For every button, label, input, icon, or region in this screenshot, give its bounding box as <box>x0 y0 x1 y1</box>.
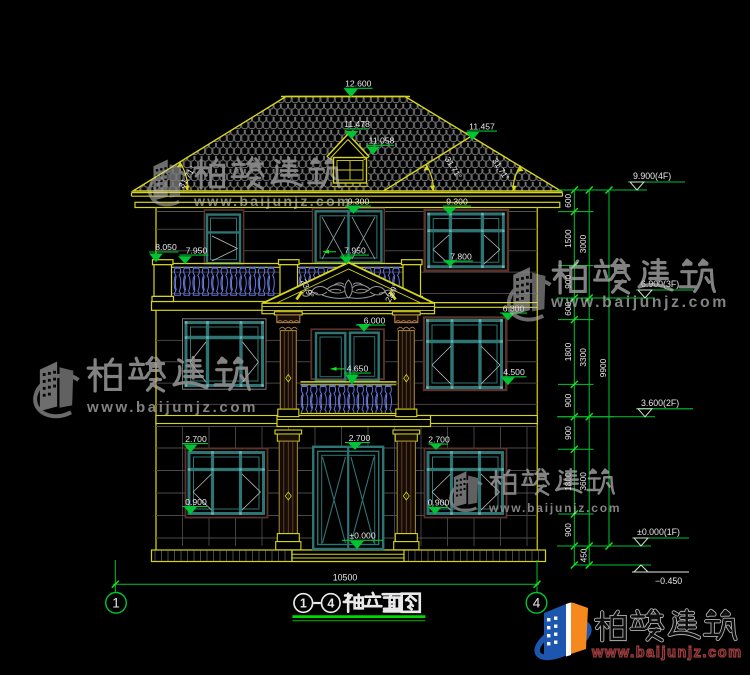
svg-text:1: 1 <box>300 597 307 611</box>
svg-text:www.baijunjz.com: www.baijunjz.com <box>591 645 743 661</box>
svg-text:3600: 3600 <box>578 472 588 491</box>
svg-text:9.300: 9.300 <box>446 196 468 206</box>
svg-text:8.050: 8.050 <box>155 242 177 252</box>
svg-text:www.baijunjz.com: www.baijunjz.com <box>193 194 352 210</box>
svg-text:4: 4 <box>533 596 541 611</box>
svg-text:900: 900 <box>563 393 573 407</box>
svg-text:12.600: 12.600 <box>345 79 372 89</box>
svg-text:11.478: 11.478 <box>344 119 370 129</box>
svg-text:900: 900 <box>563 523 573 537</box>
svg-text:10500: 10500 <box>333 573 358 583</box>
svg-text:www.baijunjz.com: www.baijunjz.com <box>550 294 729 311</box>
svg-text:450: 450 <box>578 548 588 562</box>
svg-text:11.058: 11.058 <box>369 136 395 146</box>
svg-text:2.700: 2.700 <box>428 434 450 444</box>
svg-text:1500: 1500 <box>563 229 573 248</box>
svg-text:2.700: 2.700 <box>185 434 207 444</box>
svg-text:600: 600 <box>563 193 573 207</box>
svg-text:7.950: 7.950 <box>344 245 366 255</box>
svg-text:3300: 3300 <box>578 348 588 367</box>
svg-text:4: 4 <box>327 597 334 611</box>
svg-text:www.baijunjz.com: www.baijunjz.com <box>86 399 258 416</box>
svg-text:3.600(2F): 3.600(2F) <box>641 398 679 408</box>
svg-text:www.baijunjz.com: www.baijunjz.com <box>488 501 621 515</box>
svg-text:7.950: 7.950 <box>186 245 208 255</box>
svg-text:900: 900 <box>563 426 573 440</box>
svg-text:1800: 1800 <box>563 342 573 361</box>
svg-text:9900: 9900 <box>598 358 608 377</box>
svg-text:9.900(4F): 9.900(4F) <box>633 171 671 181</box>
svg-text:2.700: 2.700 <box>349 433 371 443</box>
svg-text:0.900: 0.900 <box>428 498 450 508</box>
svg-text:7.800: 7.800 <box>450 251 472 261</box>
svg-text:0.900: 0.900 <box>185 497 207 507</box>
svg-text:±0.000(1F): ±0.000(1F) <box>637 527 680 537</box>
svg-text:3000: 3000 <box>578 234 588 253</box>
svg-text:1: 1 <box>112 596 120 611</box>
svg-text:6.000: 6.000 <box>364 315 386 325</box>
svg-text:4.650: 4.650 <box>347 363 369 373</box>
svg-text:±0.000: ±0.000 <box>349 531 375 541</box>
svg-text:−0.450: −0.450 <box>655 576 682 586</box>
svg-text:4.500: 4.500 <box>503 367 525 377</box>
svg-text:11.457: 11.457 <box>469 121 495 131</box>
